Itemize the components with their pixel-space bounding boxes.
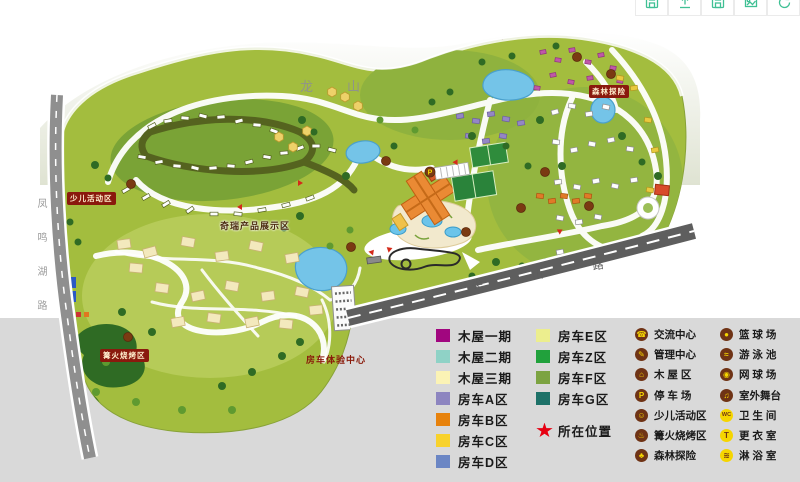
legend-color-item: 木屋二期: [436, 346, 512, 367]
park-map-page: P 龙山 凤鸣湖路 尖山路 少儿活动区 奇瑞产品展示区: [0, 0, 800, 482]
legend-icon-label: 交流中心: [654, 327, 696, 342]
legend-color-item: 木屋一期: [436, 325, 512, 346]
legend-icon-item: ≋淋 浴 室: [720, 446, 781, 466]
legend-color-swatch: [436, 329, 450, 342]
legend-color-swatch: [536, 371, 550, 384]
legend-icon-label: 更 衣 室: [739, 428, 776, 443]
legend-icon-item: ♣森林探险: [635, 446, 707, 466]
legend-color-label: 木屋三期: [458, 368, 512, 387]
legend-color-label: 木屋二期: [458, 347, 512, 366]
legend-color-swatch: [436, 455, 450, 468]
outdoor-stage-icon: ♫: [720, 389, 733, 402]
restroom-icon: WC: [720, 409, 733, 422]
legend-color-item: 房车F区: [536, 367, 612, 388]
legend-color-item: 房车D区: [436, 451, 512, 472]
parking-p-marker: P: [428, 170, 433, 177]
legend-icon-label: 游 泳 池: [739, 347, 776, 362]
legend-icon-label: 篝火烧烤区: [654, 428, 707, 443]
southeast-building: [624, 277, 661, 305]
legend-icon-label: 篮 球 场: [739, 327, 776, 342]
bonfire-area-label: 篝火烧烤区: [100, 349, 149, 362]
legend-color-label: 房车E区: [558, 326, 608, 345]
exchange-center-icon: ☎: [635, 328, 648, 341]
save-button[interactable]: [635, 0, 668, 16]
legend-color-item: 房车E区: [536, 325, 612, 346]
legend-colors-col2: 房车E区房车Z区房车F区房车G区所在位置: [536, 325, 612, 441]
legend-icon-item: T更 衣 室: [720, 425, 781, 445]
legend-color-item: 木屋三期: [436, 367, 512, 388]
forest-adventure-icon: ♣: [635, 449, 648, 462]
legend-color-swatch: [436, 434, 450, 447]
legend-color-label: 房车F区: [558, 368, 607, 387]
legend-color-item: 房车A区: [436, 388, 512, 409]
red-roof-building: [655, 184, 670, 195]
legend-color-item: 房车G区: [536, 388, 612, 409]
basketball-court-icon: ●: [720, 328, 733, 341]
legend-color-label: 房车B区: [458, 410, 509, 429]
legend-icon-item: ●篮 球 场: [720, 324, 781, 344]
legend-icon-label: 室外舞台: [739, 388, 781, 403]
upload-button[interactable]: [668, 0, 701, 16]
rv-center-label: 房车体验中心: [306, 353, 366, 366]
legend-color-item: 房车C区: [436, 430, 512, 451]
legend-color-label: 房车G区: [558, 389, 609, 408]
forest-adventure-label: 森林探险: [589, 85, 629, 98]
mountain-label: 龙山: [300, 76, 394, 95]
legend-icon-item: ◉网 球 场: [720, 365, 781, 385]
left-road-label: 凤鸣湖路: [33, 198, 48, 334]
legend-icon-item: ≈游 泳 池: [720, 344, 781, 364]
toolbar: [635, 0, 800, 15]
legend-color-swatch: [536, 350, 550, 363]
legend-icons-col2: ●篮 球 场≈游 泳 池◉网 球 场♫室外舞台WC卫 生 间T更 衣 室≋淋 浴…: [720, 324, 781, 466]
legend-color-swatch: [436, 392, 450, 405]
legend-color-swatch: [436, 371, 450, 384]
tennis-court-icon: ◉: [720, 368, 733, 381]
legend-color-label: 房车C区: [458, 431, 509, 450]
location-label: 所在位置: [558, 421, 612, 440]
legend-icon-label: 网 球 场: [739, 367, 776, 382]
legend-icon-label: 森林探险: [654, 448, 696, 463]
legend-icon-label: 木 屋 区: [654, 367, 691, 382]
parking-lot-icon: P: [635, 389, 648, 402]
changing-room-icon: T: [720, 429, 733, 442]
legend-color-swatch: [436, 413, 450, 426]
swimming-pool-icon: ≈: [720, 348, 733, 361]
wood-house-area-icon: ⌂: [635, 368, 648, 381]
management-center-icon: ✎: [635, 348, 648, 361]
legend-color-item: 房车B区: [436, 409, 512, 430]
export-image-button[interactable]: [734, 0, 767, 16]
legend-icon-item: P停 车 场: [635, 385, 707, 405]
shower-room-icon: ≋: [720, 449, 733, 462]
save-copy-button[interactable]: [701, 0, 734, 16]
legend-icon-item: ♨篝火烧烤区: [635, 425, 707, 445]
legend-icon-item: ☎交流中心: [635, 324, 707, 344]
legend-color-swatch: [436, 350, 450, 363]
legend-colors-col1: 木屋一期木屋二期木屋三期房车A区房车B区房车C区房车D区: [436, 325, 512, 472]
legend-color-label: 木屋一期: [458, 326, 512, 345]
legend-color-item: 房车Z区: [536, 346, 612, 367]
legend-icon-label: 淋 浴 室: [739, 448, 776, 463]
legend-color-swatch: [536, 392, 550, 405]
share-button[interactable]: [767, 0, 800, 16]
legend-icon-item: WC卫 生 间: [720, 405, 781, 425]
children-area-label: 少儿活动区: [67, 192, 116, 205]
legend-icon-label: 卫 生 间: [739, 408, 776, 423]
legend-color-label: 房车Z区: [558, 347, 607, 366]
legend-icon-label: 管理中心: [654, 347, 696, 362]
location-star-icon: [536, 423, 553, 439]
legend-color-swatch: [536, 329, 550, 342]
legend-icon-label: 停 车 场: [654, 388, 691, 403]
legend-icon-item: ✎管理中心: [635, 344, 707, 364]
children-activity-area-icon: ☺: [635, 409, 648, 422]
legend-icons-col1: ☎交流中心✎管理中心⌂木 屋 区P停 车 场☺少儿活动区♨篝火烧烤区♣森林探险: [635, 324, 707, 466]
legend-color-label: 房车D区: [458, 452, 509, 471]
current-location-legend: 所在位置: [536, 420, 612, 441]
legend-icon-item: ☺少儿活动区: [635, 405, 707, 425]
legend-icon-item: ♫室外舞台: [720, 385, 781, 405]
chery-exhibit-label: 奇瑞产品展示区: [220, 219, 290, 232]
legend-icon-item: ⌂木 屋 区: [635, 365, 707, 385]
roundabout: [637, 197, 659, 219]
bonfire-bbq-area-icon: ♨: [635, 429, 648, 442]
legend-icon-label: 少儿活动区: [654, 408, 707, 423]
legend-color-label: 房车A区: [458, 389, 509, 408]
